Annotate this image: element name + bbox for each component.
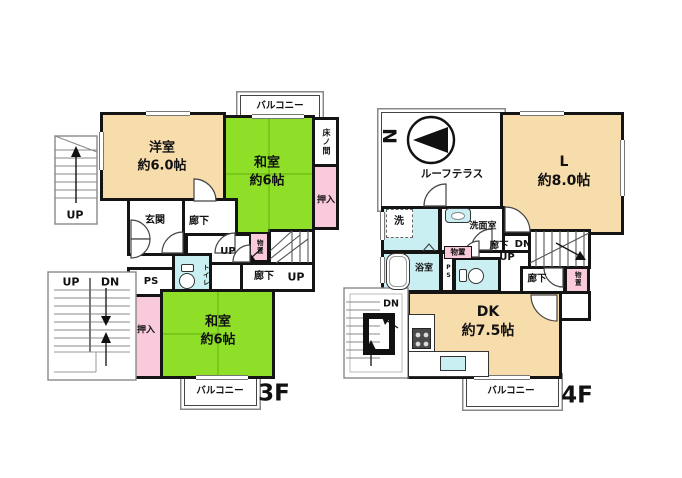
roof-terrace-4f bbox=[381, 112, 502, 208]
label-hall-b-3f: 廊下 bbox=[254, 272, 274, 282]
label-ps-4f: PS bbox=[445, 264, 451, 280]
room-closet-b-3f bbox=[130, 294, 163, 379]
floor-label-4f: 4F bbox=[561, 385, 593, 408]
label-washroom-4f: 洗面室 bbox=[469, 223, 496, 232]
label-ext-up-top-3f: UP bbox=[67, 210, 84, 221]
label-genkan: 玄関 bbox=[145, 216, 165, 226]
floor-label-3f: 3F bbox=[258, 383, 290, 406]
label-ps-3f: PS bbox=[144, 277, 159, 287]
room-label-japanese-a-3f: 和室約6帖 bbox=[249, 154, 284, 189]
label-ext-up-bottom-3f: UP bbox=[63, 277, 80, 288]
window bbox=[196, 375, 248, 380]
window bbox=[146, 111, 190, 116]
label-laundry-4f: 洗 bbox=[394, 217, 404, 227]
toilet-icon-3f bbox=[179, 264, 197, 290]
label-closet-a-3f: 押入 bbox=[317, 197, 335, 206]
label-up-hall-b-3f: UP bbox=[288, 272, 305, 283]
label-storage-a-4f: 物置 bbox=[451, 248, 466, 256]
window bbox=[380, 212, 385, 240]
label-ext-dn-bottom-3f: DN bbox=[101, 277, 119, 288]
label-hall-a-3f: 廊下 bbox=[189, 217, 209, 227]
window bbox=[520, 111, 564, 116]
label-stair-up-4f: UP bbox=[499, 253, 514, 263]
room-stairs-3f bbox=[268, 229, 315, 265]
label-closet-b-3f: 押入 bbox=[137, 327, 155, 336]
label-balcony-top-3f: バルコニー bbox=[256, 101, 303, 111]
room-label-living-4f: L約8.0帖 bbox=[538, 153, 591, 191]
stove-icon bbox=[412, 328, 431, 349]
window bbox=[620, 140, 625, 196]
label-ext-dn-4f: DN bbox=[383, 299, 399, 309]
label-toilet-3f: トイレ bbox=[202, 264, 209, 287]
room-stairs-4f bbox=[528, 229, 591, 269]
washbasin-icon bbox=[445, 208, 471, 223]
label-hall-b-4f: 廊下 bbox=[527, 274, 546, 284]
compass-n-label: N bbox=[382, 128, 401, 144]
label-up-hallmid-3f: UP bbox=[220, 247, 235, 257]
label-balcony-4f: バルコニー bbox=[487, 386, 534, 396]
window bbox=[380, 257, 385, 283]
toilet-tank bbox=[181, 264, 194, 272]
label-storage-b-4f: 物置 bbox=[574, 272, 581, 287]
room-label-western-3f: 洋室約6.0帖 bbox=[137, 139, 186, 174]
floorplan-4f: N ルーフテラス L約8.0帖 DK約7.5帖 洗 洗面室 物置 浴室 PS 廊… bbox=[0, 0, 682, 478]
room-genkan-3f bbox=[127, 198, 185, 256]
room-label-dk-4f: DK約7.5帖 bbox=[462, 303, 515, 341]
label-storage-3f: 物置 bbox=[256, 240, 263, 255]
label-stair-dn-4f: DN bbox=[515, 240, 532, 250]
label-tokonoma: 床ノ間 bbox=[322, 129, 330, 156]
label-roof-terrace: ルーフテラス bbox=[421, 169, 483, 180]
label-balcony-bottom-3f: バルコニー bbox=[196, 386, 243, 396]
toilet-tank bbox=[459, 269, 467, 282]
kitchen-sink-icon bbox=[440, 356, 466, 371]
label-bath-4f: 浴室 bbox=[415, 265, 433, 274]
floorplan-canvas: 洋室約6.0帖 和室約6帖 和室約6帖 床ノ間 押入 バルコニー 玄関 廊下 U… bbox=[0, 0, 682, 478]
label-hall-a-4f: 廊下 bbox=[489, 241, 508, 251]
toilet-bowl bbox=[468, 268, 484, 284]
toilet-icon-4f bbox=[459, 266, 485, 284]
window bbox=[99, 132, 104, 170]
room-label-japanese-b-3f: 和室約6帖 bbox=[200, 313, 235, 348]
window bbox=[252, 114, 304, 119]
toilet-bowl bbox=[179, 273, 195, 289]
bathtub-icon bbox=[386, 253, 410, 290]
